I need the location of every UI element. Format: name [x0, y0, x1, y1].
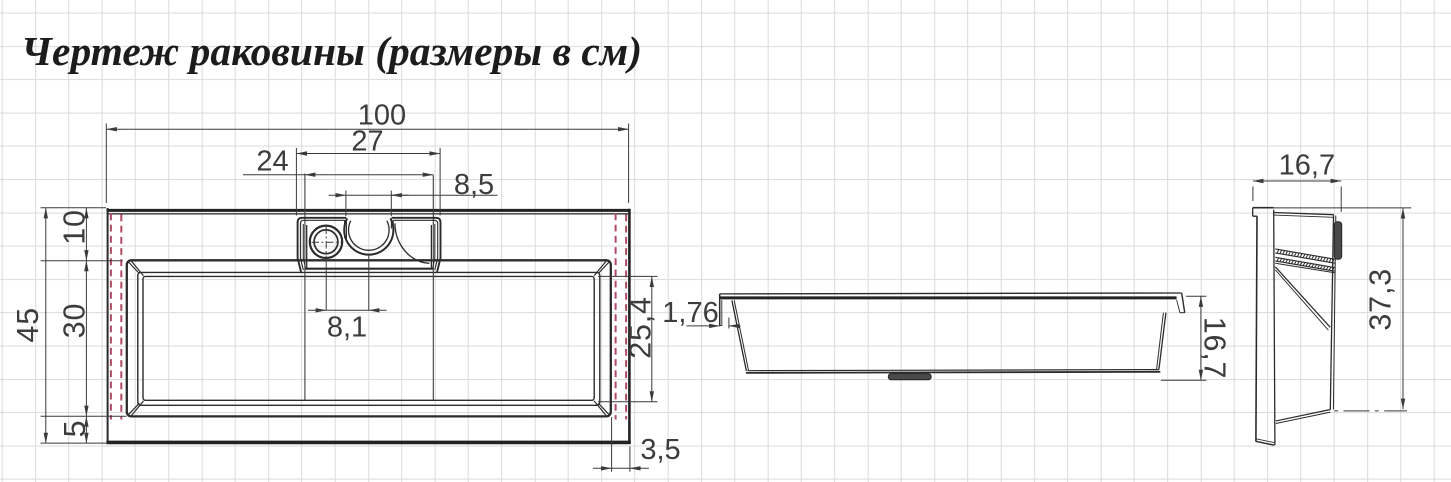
svg-text:16,7: 16,7	[1279, 150, 1335, 182]
svg-text:45: 45	[11, 307, 45, 343]
svg-text:24: 24	[256, 146, 288, 178]
svg-text:27: 27	[351, 126, 383, 158]
svg-text:8,5: 8,5	[454, 169, 494, 201]
svg-text:25,4: 25,4	[624, 296, 658, 359]
svg-text:30: 30	[58, 303, 92, 339]
svg-text:3,5: 3,5	[640, 434, 680, 466]
svg-text:8,1: 8,1	[327, 312, 367, 344]
svg-text:37,3: 37,3	[1364, 268, 1398, 331]
svg-text:1,76: 1,76	[662, 297, 718, 329]
svg-text:10: 10	[58, 209, 92, 245]
svg-text:5: 5	[58, 420, 92, 438]
svg-text:16,7: 16,7	[1198, 317, 1232, 380]
